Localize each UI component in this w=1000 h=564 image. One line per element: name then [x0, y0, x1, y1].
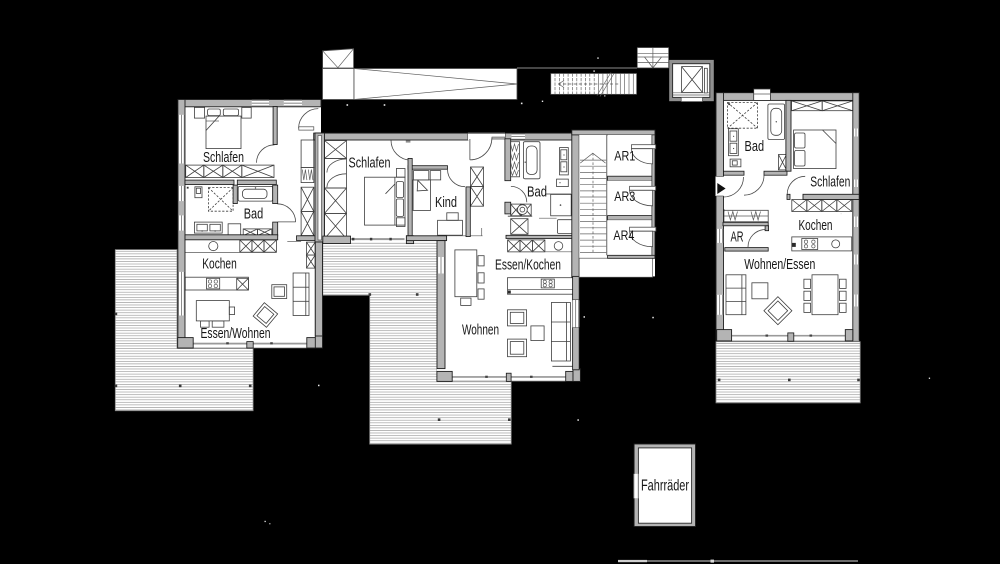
svg-text:Kochen: Kochen [799, 218, 833, 234]
svg-text:Bad: Bad [527, 184, 547, 200]
svg-text:Schlafen: Schlafen [810, 175, 850, 191]
svg-text:AR: AR [731, 230, 744, 246]
svg-text:Bad: Bad [244, 206, 264, 222]
svg-text:Wohnen/Essen: Wohnen/Essen [744, 257, 815, 273]
svg-text:Fahrräder: Fahrräder [641, 478, 689, 495]
svg-text:Bad: Bad [745, 139, 765, 155]
svg-text:Essen/Kochen: Essen/Kochen [495, 257, 561, 273]
svg-text:AR4: AR4 [613, 228, 634, 244]
svg-text:AR3: AR3 [614, 189, 635, 205]
svg-text:Kind: Kind [435, 195, 457, 211]
svg-text:Wohnen: Wohnen [462, 323, 499, 339]
svg-text:Schlafen: Schlafen [203, 150, 244, 166]
svg-text:Kochen: Kochen [202, 257, 237, 273]
svg-text:AR1: AR1 [614, 149, 635, 165]
svg-text:Essen/Wohnen: Essen/Wohnen [201, 326, 271, 342]
svg-text:Schlafen: Schlafen [349, 155, 391, 171]
